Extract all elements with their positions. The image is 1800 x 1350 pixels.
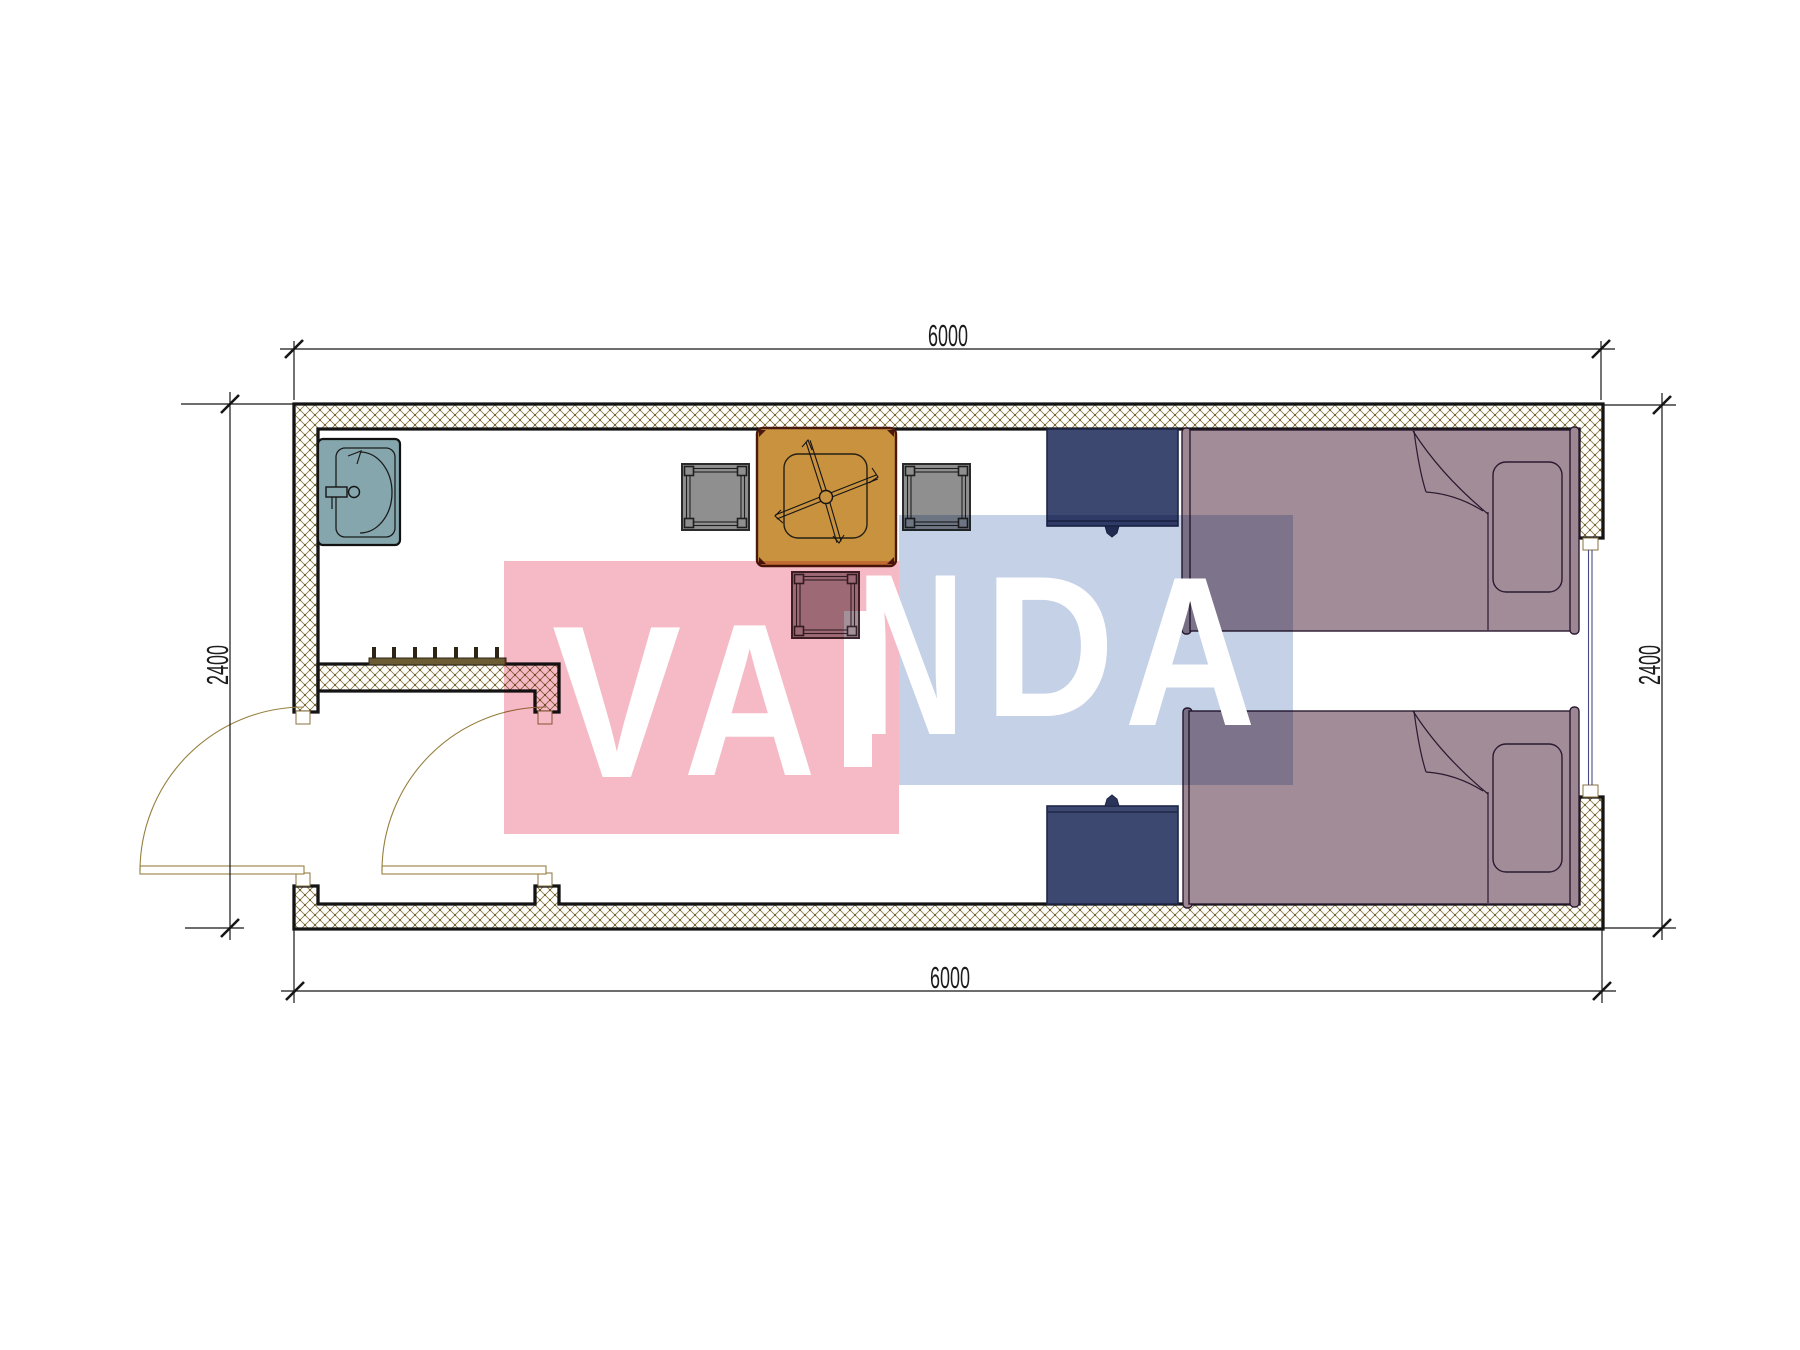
svg-text:V: V: [552, 581, 681, 824]
svg-text:A: A: [1124, 533, 1256, 771]
svg-text:D: D: [984, 534, 1114, 759]
